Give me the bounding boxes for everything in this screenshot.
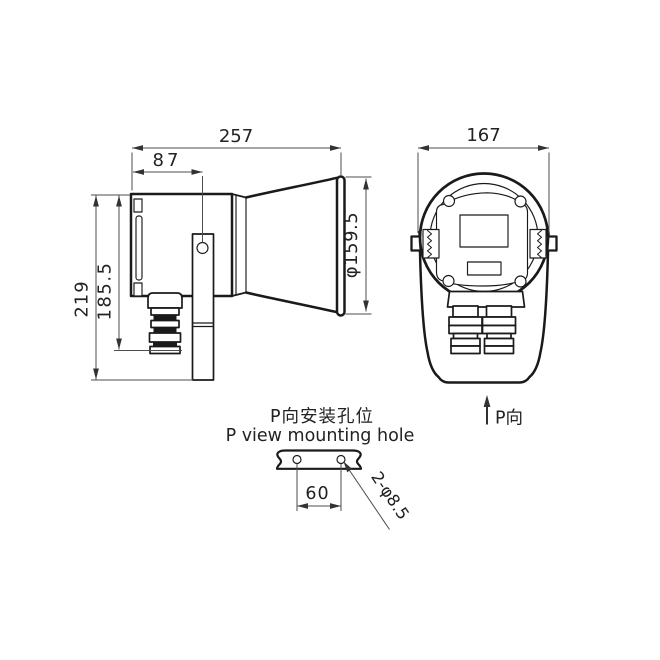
plate-screw [443, 276, 454, 287]
plate-screw [515, 196, 526, 207]
side-view [131, 177, 345, 381]
cable-gland-front-left [449, 306, 482, 354]
dim-159-label: φ159.5 [341, 212, 362, 278]
detail-title-en: P view mounting hole [226, 426, 415, 446]
technical-drawing-canvas: 257 87 φ159.5 219 185.5 167 P向 P向安装孔位 P … [0, 0, 660, 660]
dim-167-label: 167 [466, 125, 500, 146]
rear-clip-bottom [134, 283, 142, 296]
mounting-hole [293, 456, 301, 464]
front-view [412, 174, 557, 425]
horn-driver-housing [131, 194, 236, 296]
dim-60-label: 60 [305, 484, 329, 504]
drawing-svg: 257 87 φ159.5 219 185.5 167 P向 P向安装孔位 P … [0, 0, 660, 660]
plate-screw [515, 276, 526, 287]
dim-219-label: 219 [72, 280, 93, 317]
cable-gland-side [148, 293, 182, 354]
p-direction-arrow [484, 395, 491, 425]
rear-slot [136, 216, 142, 280]
bracket-tab-right [530, 230, 546, 259]
dim-185-label: 185.5 [95, 261, 116, 320]
rear-clip-top [134, 199, 142, 212]
mounting-bracket-side [193, 234, 214, 380]
plate-screw [444, 196, 455, 207]
dim-87-label: 87 [153, 150, 182, 171]
p-direction-label: P向 [495, 409, 523, 429]
bracket-tab-left [423, 230, 439, 259]
label-plate [460, 215, 508, 247]
hole-spec-label: 2-φ8.5 [367, 468, 413, 523]
gland-neck [448, 292, 525, 308]
small-plate [468, 262, 502, 275]
detail-title-zh: P向安装孔位 [270, 407, 374, 427]
horn-flare [232, 177, 345, 316]
cable-gland-front-right [483, 306, 516, 354]
dim-257-label: 257 [219, 126, 253, 147]
bracket-pivot-hole [197, 243, 208, 254]
